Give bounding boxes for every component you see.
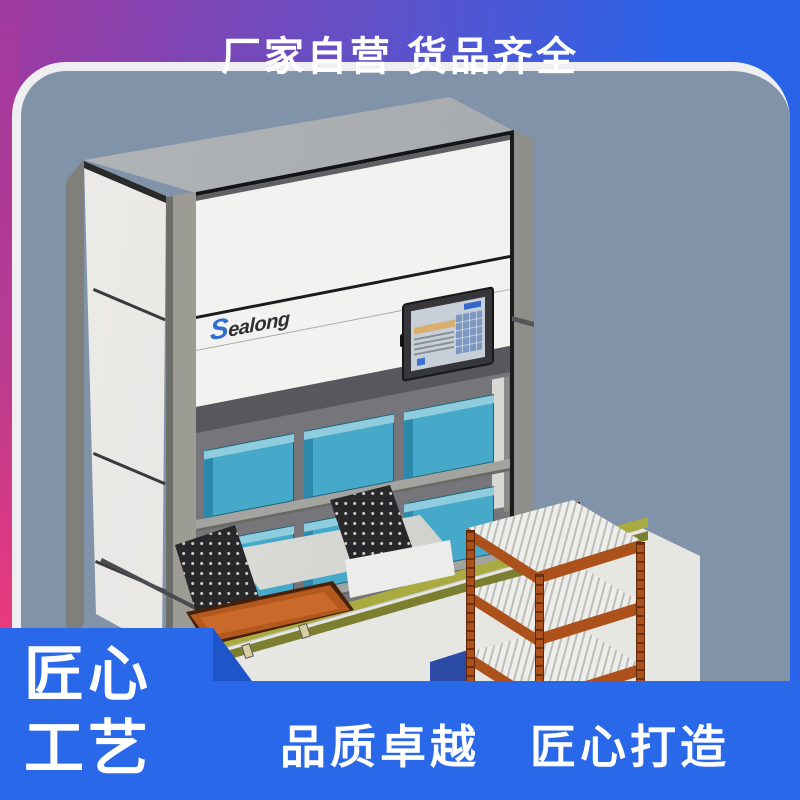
cart-post-left: [466, 530, 475, 692]
screen-keypad-grid: [455, 309, 482, 354]
tray-clip: [298, 623, 311, 639]
screen-display: [411, 297, 485, 371]
screen-icon: [417, 357, 425, 366]
roller-cart: [450, 490, 700, 700]
craftsmanship-badge: 匠心 工艺: [0, 628, 213, 800]
top-banner-text: 厂家自营 货品齐全: [0, 24, 800, 82]
screen-header-bar: [464, 301, 481, 310]
cart-post-right: [636, 542, 645, 694]
badge-line1: 匠心: [24, 638, 213, 712]
tray-clip: [241, 643, 254, 659]
brand-logo: Sealong: [210, 292, 330, 347]
bottom-banner-text: 品质卓越 匠心打造: [280, 711, 730, 777]
badge-line2: 工艺: [24, 712, 213, 786]
product-showcase-image: Sealong: [0, 0, 800, 800]
